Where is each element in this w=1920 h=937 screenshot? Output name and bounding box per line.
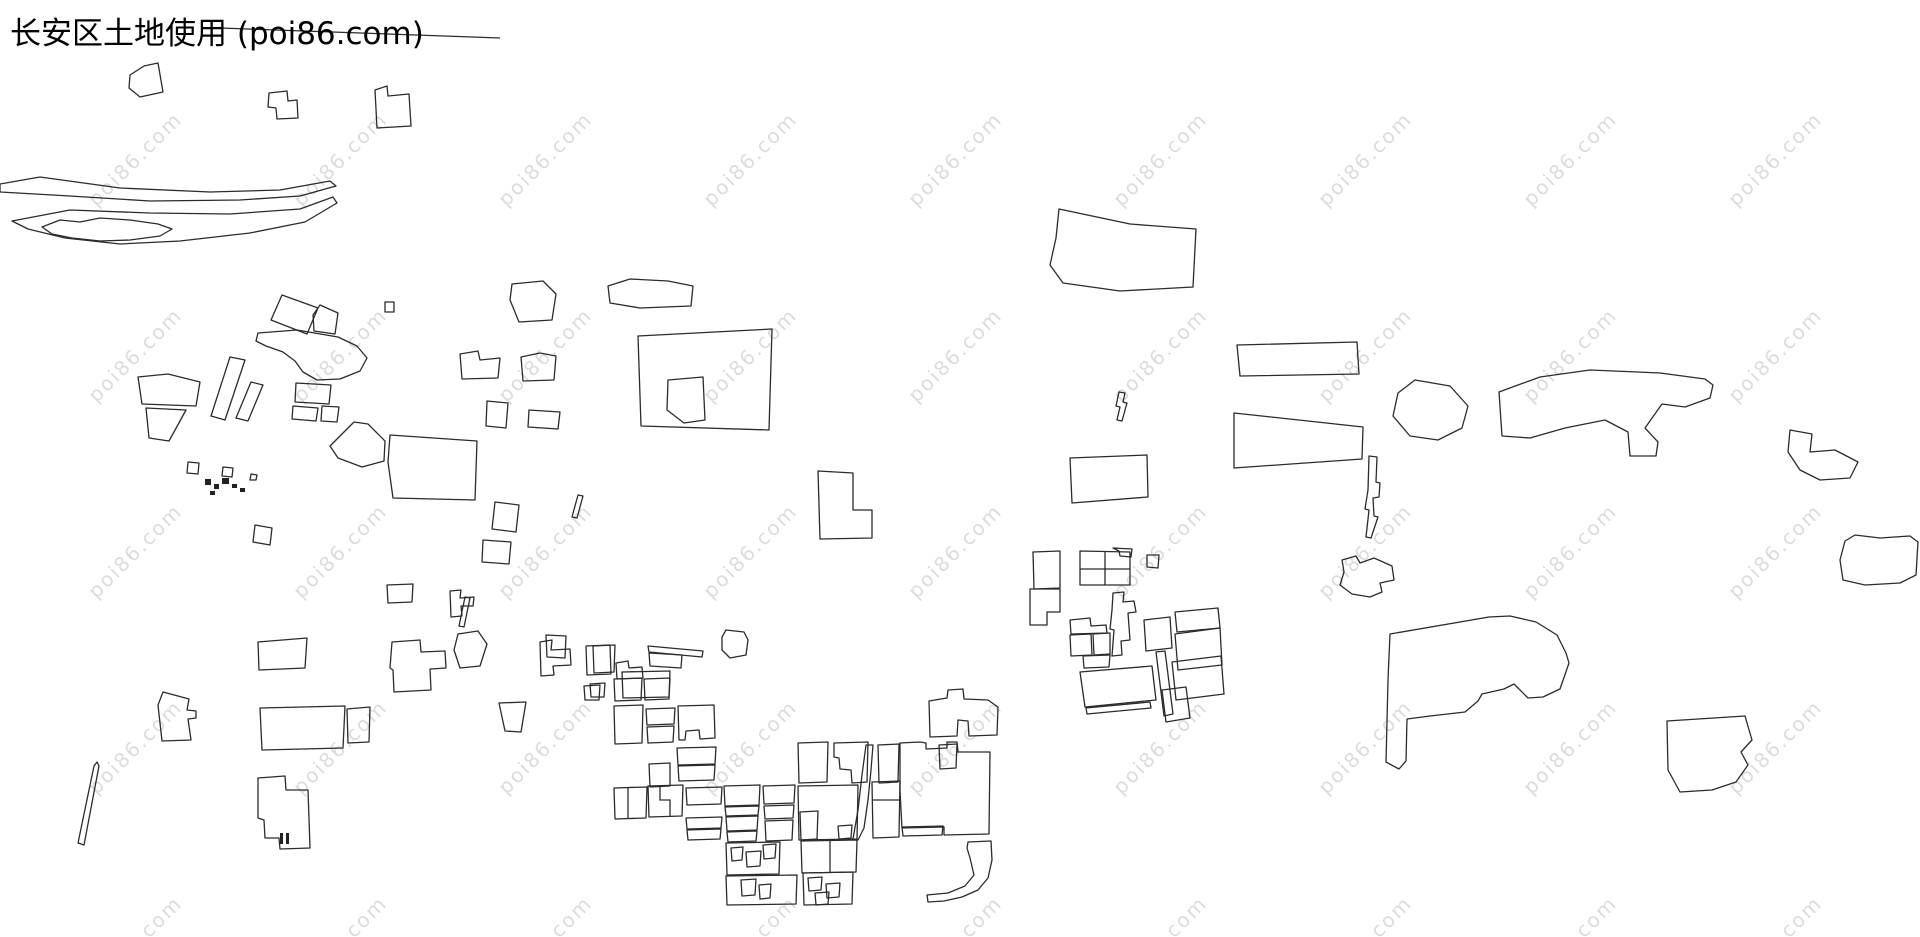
parcel-polygon xyxy=(158,692,196,741)
parcel-polygon xyxy=(1070,618,1107,634)
parcel-polygon xyxy=(686,817,722,829)
parcel-polygon xyxy=(687,829,721,840)
parcel-polygon xyxy=(878,744,899,783)
parcel-polygon xyxy=(271,295,318,334)
parcel-polygon xyxy=(546,635,566,658)
parcel-polygon xyxy=(648,785,683,817)
parcel-mark xyxy=(205,479,211,485)
parcel-polygon xyxy=(375,86,411,128)
parcel-polygon xyxy=(321,406,339,422)
parcel-polygon xyxy=(1840,535,1918,585)
parcel-polygon xyxy=(454,631,487,668)
parcel-mark xyxy=(232,484,237,488)
parcel-polygon xyxy=(678,765,715,781)
parcel-polygon xyxy=(686,787,722,805)
parcel-polygon xyxy=(146,408,186,441)
parcel-polygon xyxy=(572,495,583,518)
parcel-polygon xyxy=(1386,616,1569,769)
parcel-polygon xyxy=(528,410,560,429)
parcel-mark xyxy=(210,491,215,495)
parcel-polygon xyxy=(385,302,394,312)
parcel-polygon xyxy=(731,847,743,861)
parcel-mark xyxy=(214,484,219,489)
parcel-polygon xyxy=(1033,551,1060,589)
parcel-polygon xyxy=(608,279,693,308)
parcel-polygon xyxy=(1030,589,1060,625)
parcel-polygon xyxy=(764,805,794,819)
parcel-polygon xyxy=(460,351,500,379)
parcel-polygon xyxy=(1070,634,1092,656)
parcel-polygon xyxy=(649,763,670,787)
parcel-polygon xyxy=(798,785,858,840)
parcel-polygon xyxy=(1172,656,1224,700)
parcel-polygon xyxy=(387,584,413,603)
parcel-polygon xyxy=(678,705,715,740)
parcel-polygon xyxy=(292,406,318,421)
parcel-polygon xyxy=(584,685,600,700)
parcel-polygon xyxy=(211,357,245,420)
parcel-mark xyxy=(240,488,245,492)
parcel-polygon xyxy=(741,879,756,896)
parcel-polygon xyxy=(593,645,615,673)
parcel-polygon xyxy=(622,671,670,698)
parcel-polygon xyxy=(929,689,998,737)
parcel-polygon xyxy=(798,742,828,783)
parcel-polygon xyxy=(853,745,873,840)
parcel-polygon xyxy=(838,825,852,839)
parcel-polygon xyxy=(1080,666,1156,707)
parcel-polygon xyxy=(746,851,761,867)
parcel-polygon xyxy=(187,462,199,474)
parcel-polygon xyxy=(725,806,759,816)
parcel-polygon xyxy=(808,877,822,891)
parcel-polygon xyxy=(268,91,298,119)
parcel-polygon xyxy=(726,816,758,831)
parcel-polygon xyxy=(253,525,272,545)
parcel-polygon xyxy=(510,281,556,322)
parcel-polygon xyxy=(260,706,345,750)
parcel-polygon xyxy=(222,467,233,477)
parcel-polygon xyxy=(800,811,818,840)
parcel-polygon xyxy=(614,705,643,744)
parcel-mark xyxy=(280,833,283,844)
parcel-polygon xyxy=(1499,370,1713,456)
parcel-polygon xyxy=(759,884,771,899)
parcel-polygon xyxy=(649,653,682,668)
parcel-polygon xyxy=(765,820,793,841)
parcel-polygon xyxy=(1083,655,1110,668)
parcel-polygon xyxy=(1162,687,1190,722)
page-title: 长安区土地使用 (poi86.com) xyxy=(10,8,424,53)
parcel-polygon xyxy=(295,383,331,404)
parcel-polygon xyxy=(1144,617,1172,651)
parcel-polygon xyxy=(486,401,508,428)
parcel-polygon xyxy=(1070,455,1148,503)
parcel-polygon xyxy=(801,840,857,873)
parcel-polygon xyxy=(667,377,705,423)
parcel-polygon xyxy=(236,382,263,421)
parcel-polygon xyxy=(1340,556,1394,597)
parcel-polygon xyxy=(616,661,643,679)
parcel-polygon xyxy=(313,305,338,334)
parcel-polygon xyxy=(1175,628,1222,670)
parcel-polygon xyxy=(330,422,385,467)
parcel-polygon xyxy=(927,841,992,902)
parcel-polygon xyxy=(646,708,675,725)
parcel-polygon xyxy=(722,630,748,658)
parcel-polygon xyxy=(818,471,872,539)
parcel-polygon xyxy=(1788,430,1858,480)
parcel-polygon xyxy=(900,742,990,835)
parcel-polygon xyxy=(521,353,556,381)
parcel-polygon xyxy=(834,742,868,783)
parcel-polygon xyxy=(1147,555,1159,568)
parcel-polygon xyxy=(1093,633,1110,655)
parcel-polygon xyxy=(726,875,797,905)
parcel-polygon xyxy=(390,640,446,692)
parcel-polygon xyxy=(763,844,776,859)
parcel-polygon xyxy=(492,502,519,532)
parcel-mark xyxy=(286,833,289,844)
parcel-polygon xyxy=(129,63,163,97)
parcel-mark xyxy=(222,478,229,484)
parcel-polygon xyxy=(727,831,757,842)
parcel-polygon xyxy=(0,177,336,201)
parcel-polygon xyxy=(1110,592,1136,656)
parcel-polygon xyxy=(347,707,370,743)
parcel-polygon xyxy=(482,540,511,564)
parcel-polygon xyxy=(1237,342,1359,376)
parcel-polygon xyxy=(388,435,477,500)
parcel-polygon xyxy=(872,781,900,838)
parcel-polygon xyxy=(648,646,703,657)
parcel-polygon xyxy=(586,645,611,675)
parcel-polygon xyxy=(724,785,760,806)
map-canvas: poi86.compoi86.compoi86.compoi86.compoi8… xyxy=(0,0,1920,937)
parcel-polygon xyxy=(1234,413,1363,468)
parcel-polygon xyxy=(1116,392,1127,421)
parcel-polygon xyxy=(258,638,307,670)
parcel-polygon xyxy=(1365,456,1380,538)
parcel-polygon xyxy=(78,762,99,845)
parcel-polygon xyxy=(138,374,200,406)
parcel-polygon xyxy=(1393,380,1468,440)
parcel-polygon xyxy=(614,787,647,819)
parcel-divider-line xyxy=(660,786,670,816)
parcel-polygon xyxy=(499,702,526,732)
parcel-polygon xyxy=(1667,716,1752,792)
parcel-polygon xyxy=(459,597,470,627)
parcel-polygon xyxy=(677,747,716,765)
parcel-polygon xyxy=(256,330,367,380)
land-parcel-map xyxy=(0,0,1920,937)
parcel-polygon xyxy=(250,474,257,480)
parcel-polygon xyxy=(1050,209,1196,291)
parcel-polygon xyxy=(258,776,310,849)
parcel-polygon xyxy=(647,726,674,743)
parcel-polygon xyxy=(450,590,474,617)
parcel-polygon xyxy=(763,785,795,804)
